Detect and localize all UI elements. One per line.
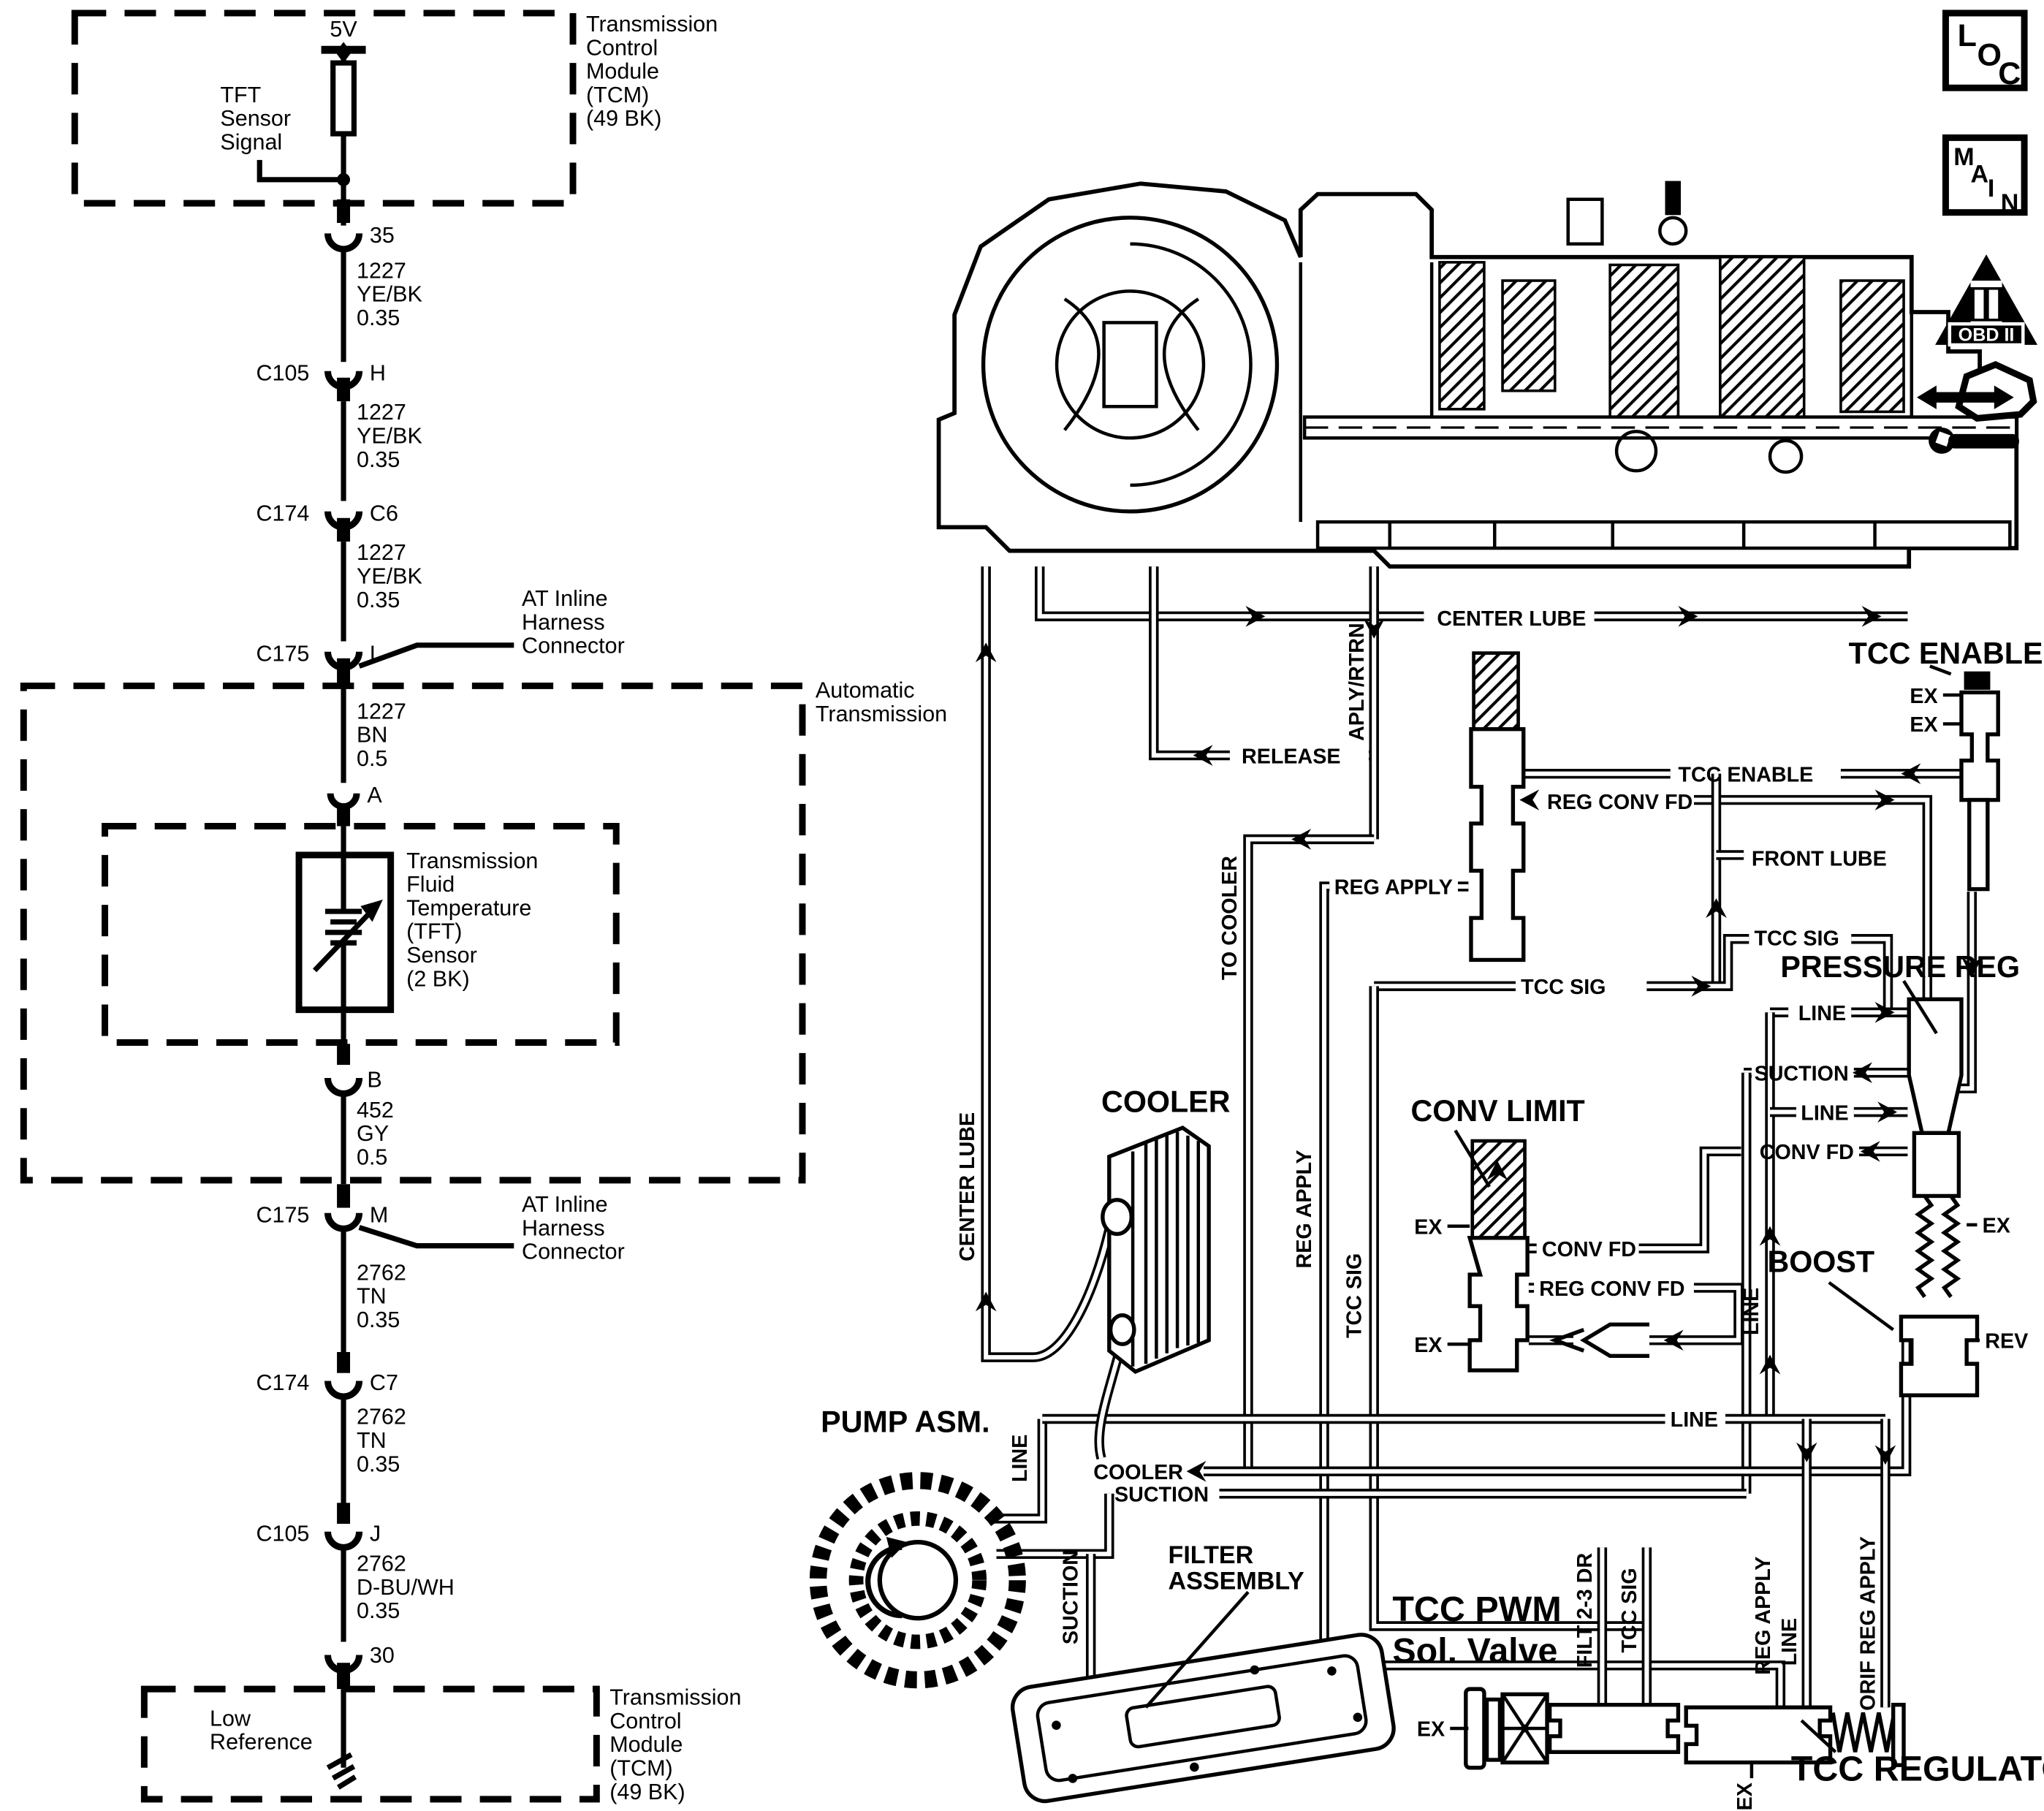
svg-text:A: A: [367, 783, 382, 808]
svg-text:0.35: 0.35: [357, 1598, 400, 1623]
rev-port-label: REV: [1985, 1330, 2028, 1353]
svg-text:2762: 2762: [357, 1260, 406, 1285]
tcc-enable-ex-2: EX: [1910, 713, 1937, 737]
svg-text:(TFT): (TFT): [406, 919, 462, 944]
svg-text:L: L: [1958, 18, 1977, 53]
line-port-top-label: LINE: [1798, 1002, 1846, 1025]
svg-text:BN: BN: [357, 723, 387, 748]
conv-limit-ex-lower: EX: [1414, 1334, 1442, 1357]
svg-text:I: I: [1988, 175, 1994, 202]
svg-text:GY: GY: [357, 1121, 389, 1146]
wiring-diagram: Transmission Control Module (TCM) (49 BK…: [23, 12, 947, 1804]
svg-text:TN: TN: [357, 1284, 387, 1309]
svg-text:0.5: 0.5: [357, 1144, 387, 1169]
tcc-enable-pipe-label: TCC ENABLE: [1678, 763, 1813, 786]
svg-text:Module: Module: [586, 59, 659, 84]
tcc-sig-v1-label: TCC SIG: [1342, 1253, 1366, 1338]
reg-apply-v1-label: REG APPLY: [1293, 1150, 1316, 1268]
svg-text:N: N: [2001, 189, 2019, 217]
loc-icon: L O C: [1945, 13, 2024, 91]
svg-text:YE/BK: YE/BK: [357, 423, 422, 448]
svg-text:(49 BK): (49 BK): [609, 1780, 685, 1804]
svg-text:Harness: Harness: [522, 610, 605, 634]
conv-limit-title: CONV LIMIT: [1410, 1094, 1584, 1128]
filt-2-3-dr-label: FILT 2-3 DR: [1573, 1553, 1597, 1668]
tcm-pullup-resistor: [333, 63, 354, 134]
svg-text:Sensor: Sensor: [406, 943, 477, 968]
line-port-mid-label: LINE: [1801, 1101, 1848, 1125]
low-reference-label: Low: [210, 1706, 251, 1731]
tft-sensor-and-hydraulic-schematic: Transmission Control Module (TCM) (49 BK…: [0, 0, 2044, 1811]
svg-text:2762: 2762: [357, 1552, 406, 1576]
ground-symbol: [328, 1755, 356, 1788]
svg-text:L: L: [370, 641, 382, 666]
svg-text:(49 BK): (49 BK): [586, 106, 661, 131]
release-label: RELEASE: [1242, 745, 1340, 768]
svg-text:0.35: 0.35: [357, 588, 400, 612]
svg-text:C105: C105: [256, 360, 309, 385]
svg-text:1227: 1227: [357, 400, 406, 425]
tft-sensor-label: Transmission: [406, 848, 538, 873]
tcm-box-top: [75, 13, 573, 203]
front-lube-label: FRONT LUBE: [1752, 847, 1887, 870]
tft-sensor-signal-label: TFT: [220, 83, 261, 107]
tcc-enable-title: TCC ENABLE: [1849, 637, 2043, 670]
svg-text:2762: 2762: [357, 1405, 406, 1430]
conv-limit-valve: [1448, 1131, 1527, 1370]
center-lube-vertical-pipe: [986, 566, 1109, 1357]
svg-text:C174: C174: [256, 501, 309, 525]
corner-icons: L O C M A I N OBD II: [1917, 13, 2037, 454]
line-v-right-label: LINE: [1740, 1288, 1763, 1335]
tcm-top-label: Transmission: [586, 12, 718, 37]
suction-h-label: SUCTION: [1114, 1484, 1209, 1507]
svg-text:0.35: 0.35: [357, 1307, 400, 1332]
line-v-reg-label: LINE: [1778, 1618, 1801, 1666]
svg-text:C175: C175: [256, 641, 309, 666]
svg-text:Signal: Signal: [220, 130, 282, 155]
boost-valve: [1901, 1317, 1977, 1396]
svg-text:C175: C175: [256, 1202, 309, 1227]
at-inline-harness-label-1: AT Inline: [522, 586, 608, 611]
reg-apply-v2-label: REG APPLY: [1752, 1557, 1775, 1675]
main-icon: M A I N: [1945, 137, 2024, 216]
reg-conv-fd-upper-label: REG CONV FD: [1547, 791, 1692, 814]
svg-text:(2 BK): (2 BK): [406, 966, 469, 991]
filter-assembly-label: FILTER: [1169, 1541, 1254, 1569]
supply-5v-label: 5V: [330, 17, 357, 42]
transmission-cross-section: [939, 181, 2017, 567]
connector-c175-m: [328, 1213, 360, 1229]
svg-text:C105: C105: [256, 1521, 309, 1546]
aply-rtrn-label: APLY/RTRN: [1345, 623, 1369, 741]
wire-label: 1227: [357, 258, 406, 283]
conv-fd-port-label: CONV FD: [1760, 1141, 1854, 1164]
svg-text:Control: Control: [609, 1709, 681, 1734]
at-inline-harness-label-2: AT Inline: [522, 1192, 608, 1217]
svg-text:ASSEMBLY: ASSEMBLY: [1169, 1568, 1304, 1595]
svg-text:M: M: [370, 1202, 388, 1227]
svg-text:B: B: [367, 1068, 381, 1093]
pressure-regulator-valve: [1829, 981, 1980, 1395]
svg-text:Connector: Connector: [522, 1239, 625, 1264]
center-lube-pipe: [1040, 566, 1424, 616]
svg-text:C7: C7: [370, 1370, 398, 1395]
pump-assembly: [818, 1481, 1018, 1680]
svg-text:J: J: [370, 1521, 381, 1546]
svg-text:1227: 1227: [357, 699, 406, 724]
svg-text:(TCM): (TCM): [586, 83, 649, 107]
oil-pan: [1010, 1632, 1397, 1804]
svg-text:1227: 1227: [357, 540, 406, 565]
svg-text:Sensor: Sensor: [220, 106, 291, 131]
svg-text:0.5: 0.5: [357, 746, 387, 771]
tcm-pin-35-connector: [328, 233, 360, 249]
tcc-sig-mid-label: TCC SIG: [1521, 976, 1606, 999]
cooler-return-label: COOLER: [1093, 1461, 1183, 1484]
line-v-pump-label: LINE: [1008, 1435, 1032, 1482]
center-lube-h-label: CENTER LUBE: [1437, 607, 1586, 631]
tcm-bottom-label: Transmission: [609, 1685, 741, 1710]
svg-text:D-BU/WH: D-BU/WH: [357, 1575, 455, 1600]
obd2-icon: OBD II: [1935, 254, 2037, 345]
to-cooler-label: TO COOLER: [1218, 856, 1242, 980]
suction-v-label: SUCTION: [1060, 1550, 1083, 1644]
connector-c174-c7: [328, 1381, 360, 1397]
pump-asm-title: PUMP ASM.: [821, 1405, 989, 1438]
release-pipe: [1154, 566, 1230, 755]
connector-c105-j: [328, 1532, 360, 1548]
sensor-pin-b-connector: [328, 1078, 360, 1094]
svg-text:YE/BK: YE/BK: [357, 563, 422, 588]
converter-regulator-valve: [1471, 653, 1524, 960]
orif-reg-apply-label: ORIF REG APPLY: [1857, 1536, 1880, 1711]
svg-text:0.35: 0.35: [357, 1451, 400, 1476]
svg-text:Fluid: Fluid: [406, 872, 455, 897]
svg-text:YE/BK: YE/BK: [357, 282, 422, 307]
pin-35-label: 35: [370, 223, 395, 248]
svg-text:Temperature: Temperature: [406, 895, 531, 920]
pin-30-label: 30: [370, 1643, 395, 1668]
automatic-transmission-label: Automatic: [816, 678, 915, 703]
svg-text:Connector: Connector: [522, 634, 625, 658]
obd2-badge-label: OBD II: [1958, 325, 2015, 346]
svg-text:Harness: Harness: [522, 1215, 605, 1240]
sensor-pin-a-connector: [330, 794, 357, 807]
svg-text:0.35: 0.35: [357, 447, 400, 472]
pressure-reg-ex-label: EX: [1983, 1215, 2010, 1238]
svg-text:C6: C6: [370, 501, 398, 525]
reg-conv-fd-lower-label: REG CONV FD: [1539, 1277, 1684, 1301]
tcc-sig-upper-label: TCC SIG: [1755, 927, 1839, 951]
schematic-page: Transmission Control Module (TCM) (49 BK…: [0, 0, 2044, 1811]
conv-limit-ex-upper: EX: [1414, 1215, 1442, 1239]
svg-text:H: H: [370, 360, 386, 385]
cooler-radiator: [1103, 1128, 1209, 1372]
line-h-bottom-label: LINE: [1671, 1408, 1718, 1432]
svg-text:C174: C174: [256, 1370, 309, 1395]
conv-fd-label: CONV FD: [1542, 1238, 1636, 1261]
svg-text:(TCM): (TCM): [609, 1756, 672, 1781]
svg-text:Control: Control: [586, 35, 658, 60]
center-lube-v-label: CENTER LUBE: [956, 1112, 979, 1261]
tcc-pwm-title: TCC PWM: [1392, 1590, 1561, 1629]
cooler-title: COOLER: [1101, 1085, 1230, 1119]
svg-text:C: C: [1998, 56, 2021, 91]
tcc-sig-v2-label: TCC SIG: [1618, 1568, 1641, 1652]
regulator-ex-label: EX: [1733, 1782, 1757, 1810]
svg-text:TN: TN: [357, 1428, 387, 1453]
pressure-reg-title: PRESSURE REG: [1780, 950, 2020, 984]
svg-text:Module: Module: [609, 1732, 683, 1757]
svg-text:Sol. Valve: Sol. Valve: [1392, 1631, 1557, 1671]
svg-text:Reference: Reference: [210, 1730, 313, 1755]
tcc-enable-ex-1: EX: [1910, 685, 1937, 708]
tcc-regulator-title: TCC REGULATOR: [1791, 1750, 2044, 1789]
svg-text:Transmission: Transmission: [816, 702, 947, 726]
solenoid-ex-label: EX: [1417, 1718, 1445, 1742]
svg-text:A: A: [1971, 160, 1989, 188]
svg-text:0.35: 0.35: [357, 305, 400, 330]
svg-text:452: 452: [357, 1098, 394, 1123]
reg-apply-h-label: REG APPLY: [1334, 876, 1453, 900]
suction-port-label: SUCTION: [1755, 1063, 1849, 1086]
boost-title: BOOST: [1767, 1245, 1874, 1279]
